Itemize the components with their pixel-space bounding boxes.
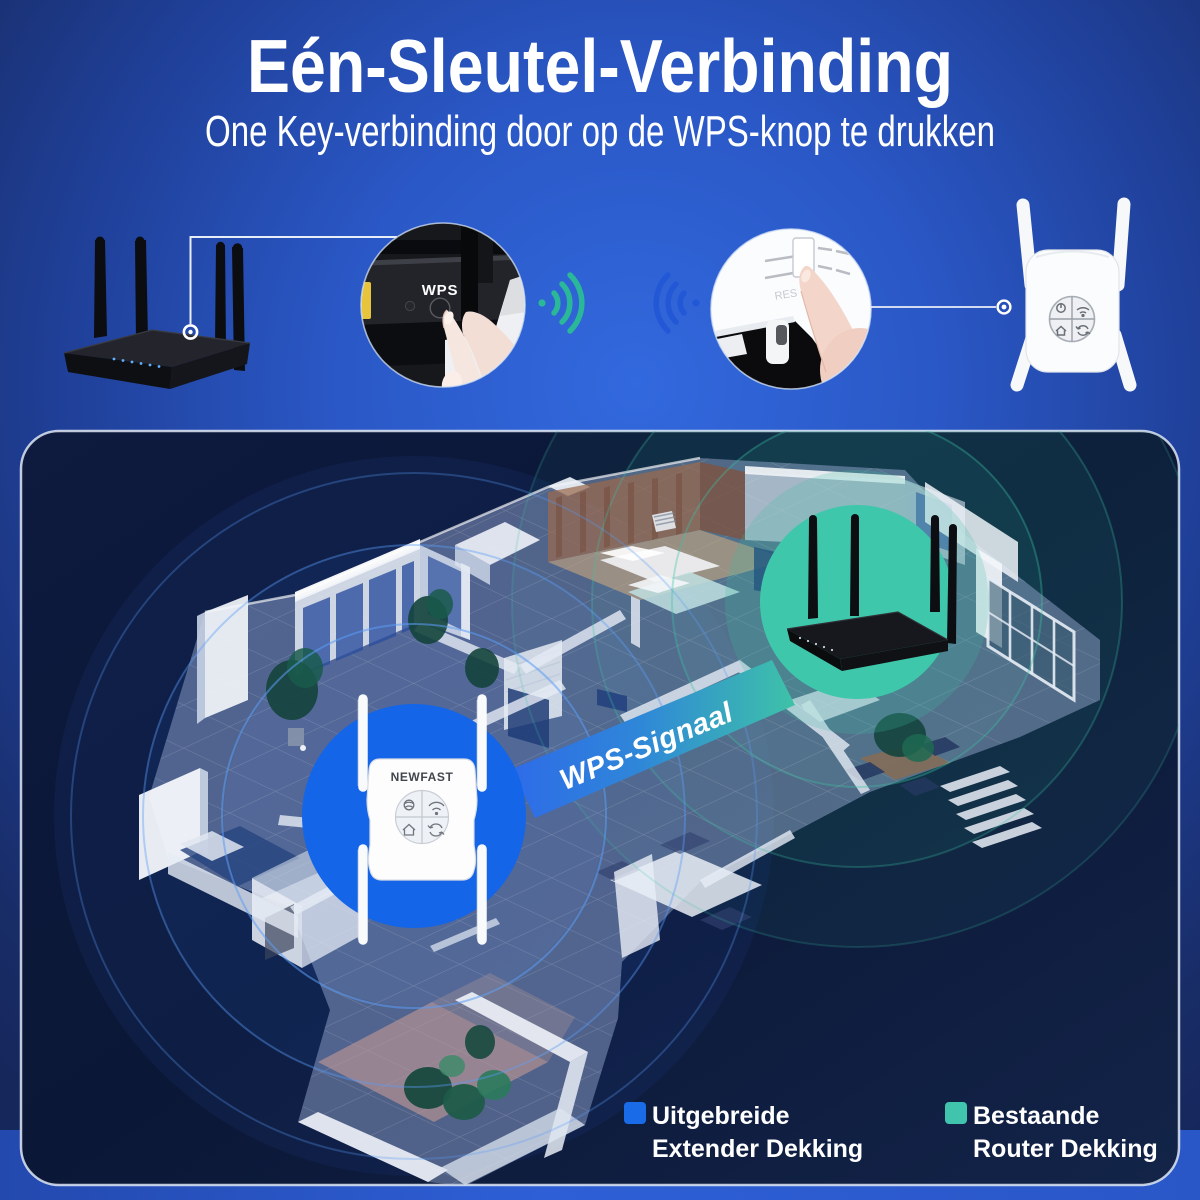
svg-text:Extender Dekking: Extender Dekking <box>652 1135 863 1163</box>
svg-text:Bestaande: Bestaande <box>973 1102 1100 1130</box>
svg-text:One Key-verbinding door op de: One Key-verbinding door op de WPS-knop t… <box>205 107 995 156</box>
svg-text:NEWFAST: NEWFAST <box>391 770 454 784</box>
svg-text:Eén-Sleutel-Verbinding: Eén-Sleutel-Verbinding <box>247 24 953 108</box>
svg-text:WPS: WPS <box>422 282 459 299</box>
svg-text:Router Dekking: Router Dekking <box>973 1135 1158 1163</box>
svg-text:Uitgebreide: Uitgebreide <box>652 1102 790 1130</box>
